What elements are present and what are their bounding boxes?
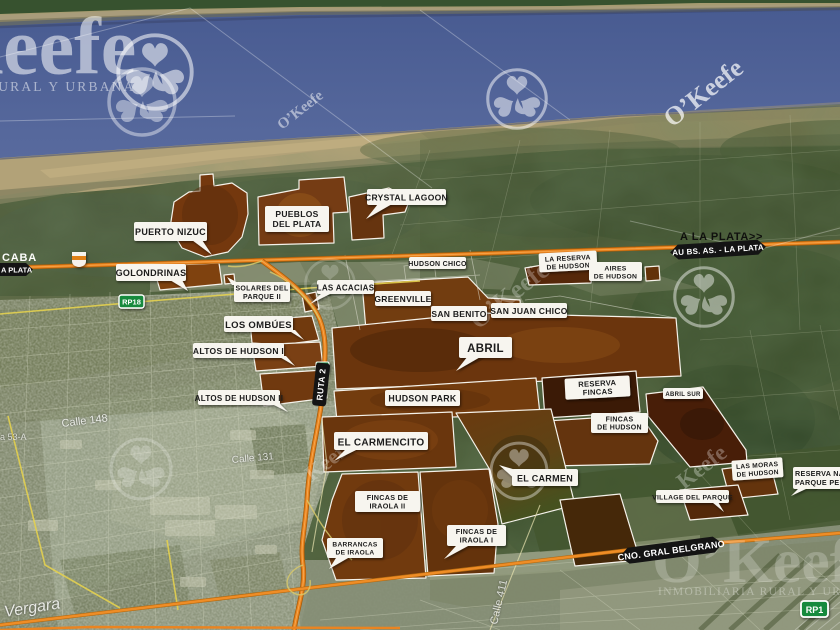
svg-text:ALTOS DE HUDSON I: ALTOS DE HUDSON I — [193, 346, 284, 356]
svg-text:EL CARMENCITO: EL CARMENCITO — [338, 438, 425, 449]
svg-text:ABRIL: ABRIL — [467, 343, 504, 355]
svg-text:SOLARES DEL: SOLARES DEL — [235, 286, 289, 293]
svg-text:RP18: RP18 — [122, 298, 141, 307]
svg-text:SAN JUAN CHICO: SAN JUAN CHICO — [490, 306, 567, 316]
svg-text:GOLONDRINAS: GOLONDRINAS — [116, 268, 187, 278]
svg-text:RESERVA NAT: RESERVA NAT — [795, 469, 840, 478]
svg-text:IRAOLA I: IRAOLA I — [460, 536, 494, 545]
svg-text:EL CARMEN: EL CARMEN — [517, 474, 573, 484]
svg-text:DE HUDSON: DE HUDSON — [594, 274, 638, 281]
svg-text:PUERTO NIZUC: PUERTO NIZUC — [135, 227, 206, 237]
svg-text:RP1: RP1 — [806, 605, 824, 615]
svg-text:CABA: CABA — [2, 252, 37, 264]
svg-text:HUDSON CHICO: HUDSON CHICO — [408, 261, 467, 268]
svg-text:ABRIL SUR: ABRIL SUR — [665, 392, 701, 398]
svg-text:RURAL Y URBANA: RURAL Y URBANA — [0, 79, 136, 94]
svg-text:BARRANCAS: BARRANCAS — [332, 542, 377, 549]
svg-text:PARQUE II: PARQUE II — [243, 294, 281, 301]
svg-text:INMOBILIARIA RURAL Y URBANA: INMOBILIARIA RURAL Y URBANA — [658, 586, 840, 598]
svg-text:HUDSON PARK: HUDSON PARK — [388, 394, 456, 404]
svg-text:FINCAS: FINCAS — [582, 387, 613, 398]
svg-text:A PLATA: A PLATA — [1, 266, 33, 275]
svg-text:LOS OMBÚES: LOS OMBÚES — [225, 319, 292, 331]
svg-text:ALTOS DE HUDSON II: ALTOS DE HUDSON II — [195, 394, 284, 403]
svg-text:DEL PLATA: DEL PLATA — [273, 219, 322, 229]
svg-text:SAN BENITO: SAN BENITO — [431, 309, 486, 319]
svg-text:FINCAS: FINCAS — [606, 417, 634, 424]
svg-text:a 53-A: a 53-A — [0, 432, 27, 442]
svg-text:DE HUDSON: DE HUDSON — [597, 425, 642, 432]
svg-text:PARQUE PER: PARQUE PER — [795, 478, 840, 487]
svg-text:LAS ACACIAS: LAS ACACIAS — [317, 284, 375, 293]
svg-text:DE IRAOLA: DE IRAOLA — [336, 550, 375, 557]
svg-text:PUEBLOS: PUEBLOS — [275, 209, 318, 219]
svg-text:AIRES: AIRES — [604, 266, 626, 273]
svg-text:CRYSTAL LAGOON: CRYSTAL LAGOON — [365, 193, 448, 203]
svg-text:VILLAGE DEL PARQUE: VILLAGE DEL PARQUE — [652, 495, 733, 502]
svg-text:GREENVILLE: GREENVILLE — [374, 294, 431, 304]
svg-text:IRAOLA II: IRAOLA II — [370, 502, 406, 511]
